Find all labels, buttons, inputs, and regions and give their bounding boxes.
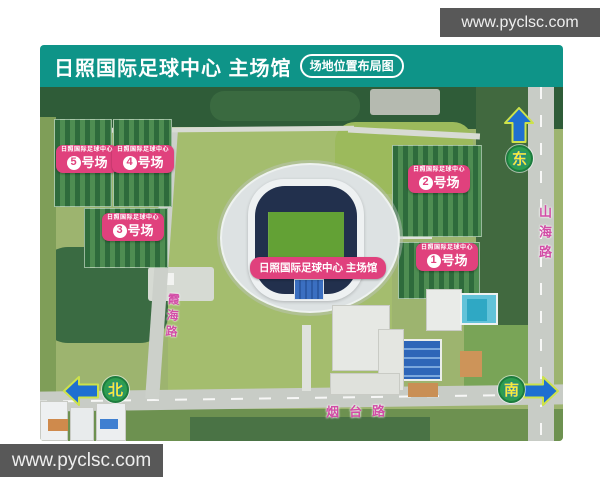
field-4-unit: 号场 <box>138 155 164 170</box>
field-4-name: 4 号场 <box>117 155 169 170</box>
field-1-name: 1 号场 <box>421 253 473 268</box>
field-3-badge: 日照国际足球中心 3 号场 <box>102 213 164 241</box>
building-tan-1 <box>460 351 482 377</box>
field-2-unit: 号场 <box>434 175 460 190</box>
compass-south: 南 <box>498 376 525 403</box>
field-5-unit: 号场 <box>82 155 108 170</box>
map-card: 日照国际足球中心 主场馆 场地位置布局图 <box>40 45 563 441</box>
field-2-number: 2 <box>419 176 433 190</box>
page-title: 日照国际足球中心 主场馆 <box>54 52 292 81</box>
field-1-unit: 号场 <box>442 253 468 268</box>
title-bar: 日照国际足球中心 主场馆 场地位置布局图 <box>40 45 563 87</box>
field-5-name: 5 号场 <box>61 155 113 170</box>
aerial-map: 日照国际足球中心 5 号场 日照国际足球中心 4 号场 日照国际足球中心 3 号… <box>40 87 563 441</box>
parking-lot-top <box>370 89 440 115</box>
compass-north: 北 <box>102 376 129 403</box>
east-arrow-icon <box>504 107 534 143</box>
field-4-number: 4 <box>123 156 137 170</box>
path-stadium-south <box>302 325 311 391</box>
field-1-org-label: 日照国际足球中心 <box>421 245 473 252</box>
road-label-yantai: 烟台路 <box>326 400 395 420</box>
field-3-number: 3 <box>113 224 127 238</box>
field-2-org-label: 日照国际足球中心 <box>413 167 465 174</box>
building-white-2 <box>426 289 462 331</box>
field-3-unit: 号场 <box>128 223 154 238</box>
residential-building-orange <box>48 419 68 431</box>
pool-water <box>467 299 487 321</box>
building-tan-2 <box>408 383 438 397</box>
south-arrow-icon <box>523 376 559 406</box>
field-3-org-label: 日照国际足球中心 <box>107 215 159 222</box>
watermark-top-right: www.pyclsc.com <box>440 8 600 37</box>
road-label-shanhai: 山海路 <box>535 205 554 265</box>
field-3-name: 3 号场 <box>107 223 159 238</box>
residential-building-2 <box>70 407 94 441</box>
building-pool <box>460 293 498 325</box>
stadium-entrance-hall <box>294 279 324 300</box>
main-stadium-badge: 日照国际足球中心 主场馆 <box>250 257 386 279</box>
building-blue-roof <box>402 339 442 381</box>
stadium-pitch <box>268 212 344 260</box>
field-2-name: 2 号场 <box>413 175 465 190</box>
field-1-badge: 日照国际足球中心 1 号场 <box>416 243 478 271</box>
field-5-number: 5 <box>67 156 81 170</box>
compass-east: 东 <box>506 145 533 172</box>
trees-patch-bottom <box>190 417 430 441</box>
page: 日照国际足球中心 主场馆 场地位置布局图 <box>0 0 600 480</box>
field-5-badge: 日照国际足球中心 5 号场 <box>56 145 118 173</box>
building-white-4 <box>330 373 400 395</box>
field-4-badge: 日照国际足球中心 4 号场 <box>112 145 174 173</box>
layout-tag-badge: 场地位置布局图 <box>300 54 404 78</box>
field-2-badge: 日照国际足球中心 2 号场 <box>408 165 470 193</box>
watermark-bottom-left: www.pyclsc.com <box>0 444 163 477</box>
residential-building-blue-roof <box>100 419 118 429</box>
trees-patch-top-2 <box>210 91 360 121</box>
field-4-org-label: 日照国际足球中心 <box>117 147 169 154</box>
north-arrow-icon <box>63 376 99 406</box>
road-label-xiahai: 霞海路 <box>162 292 182 341</box>
field-5-org-label: 日照国际足球中心 <box>61 147 113 154</box>
field-1-number: 1 <box>427 254 441 268</box>
